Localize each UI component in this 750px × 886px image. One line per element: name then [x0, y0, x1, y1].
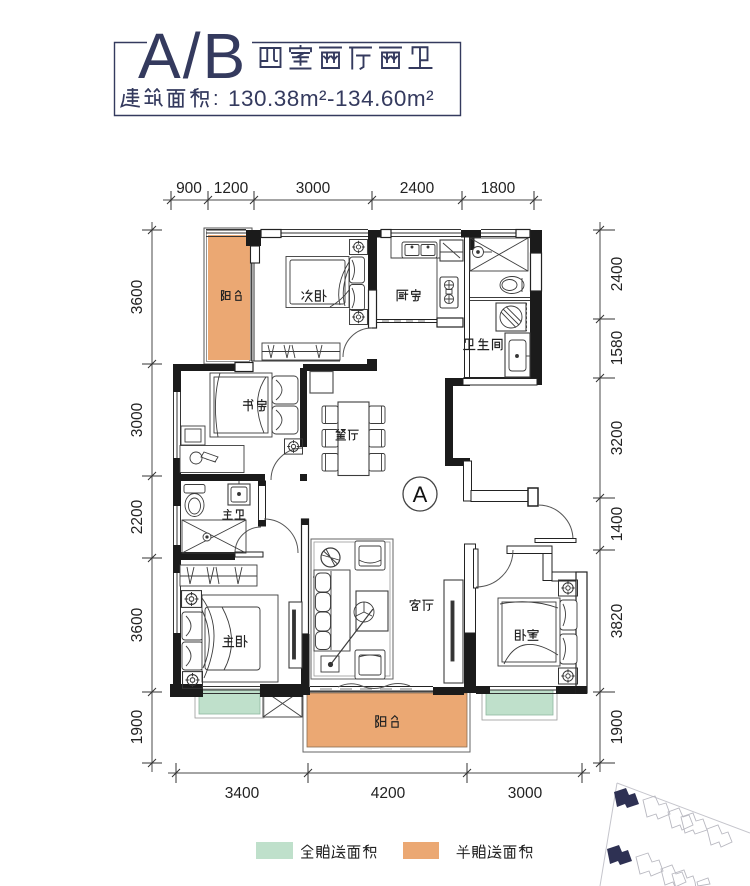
svg-text:3000: 3000: [129, 402, 146, 437]
svg-text:A: A: [413, 482, 428, 507]
svg-text:1900: 1900: [129, 709, 146, 744]
svg-text:3000: 3000: [508, 785, 543, 802]
svg-text:A/B: A/B: [138, 20, 247, 92]
svg-text:3600: 3600: [129, 279, 146, 314]
svg-text::: :: [213, 88, 219, 110]
svg-text:3820: 3820: [609, 603, 626, 638]
svg-text:2400: 2400: [609, 256, 626, 291]
svg-text:3600: 3600: [129, 607, 146, 642]
svg-text:1580: 1580: [609, 330, 626, 365]
svg-text:2200: 2200: [129, 499, 146, 534]
svg-text:4200: 4200: [371, 785, 406, 802]
svg-text:3400: 3400: [225, 785, 260, 802]
svg-text:1900: 1900: [609, 709, 626, 744]
svg-text:3000: 3000: [296, 180, 331, 197]
svg-text:130.38m²-134.60m²: 130.38m²-134.60m²: [228, 86, 434, 111]
svg-text:1200: 1200: [214, 180, 249, 197]
svg-text:900: 900: [176, 180, 202, 197]
svg-text:3200: 3200: [609, 420, 626, 455]
svg-text:1400: 1400: [609, 506, 626, 541]
svg-text:1800: 1800: [481, 180, 516, 197]
svg-text:2400: 2400: [400, 180, 435, 197]
